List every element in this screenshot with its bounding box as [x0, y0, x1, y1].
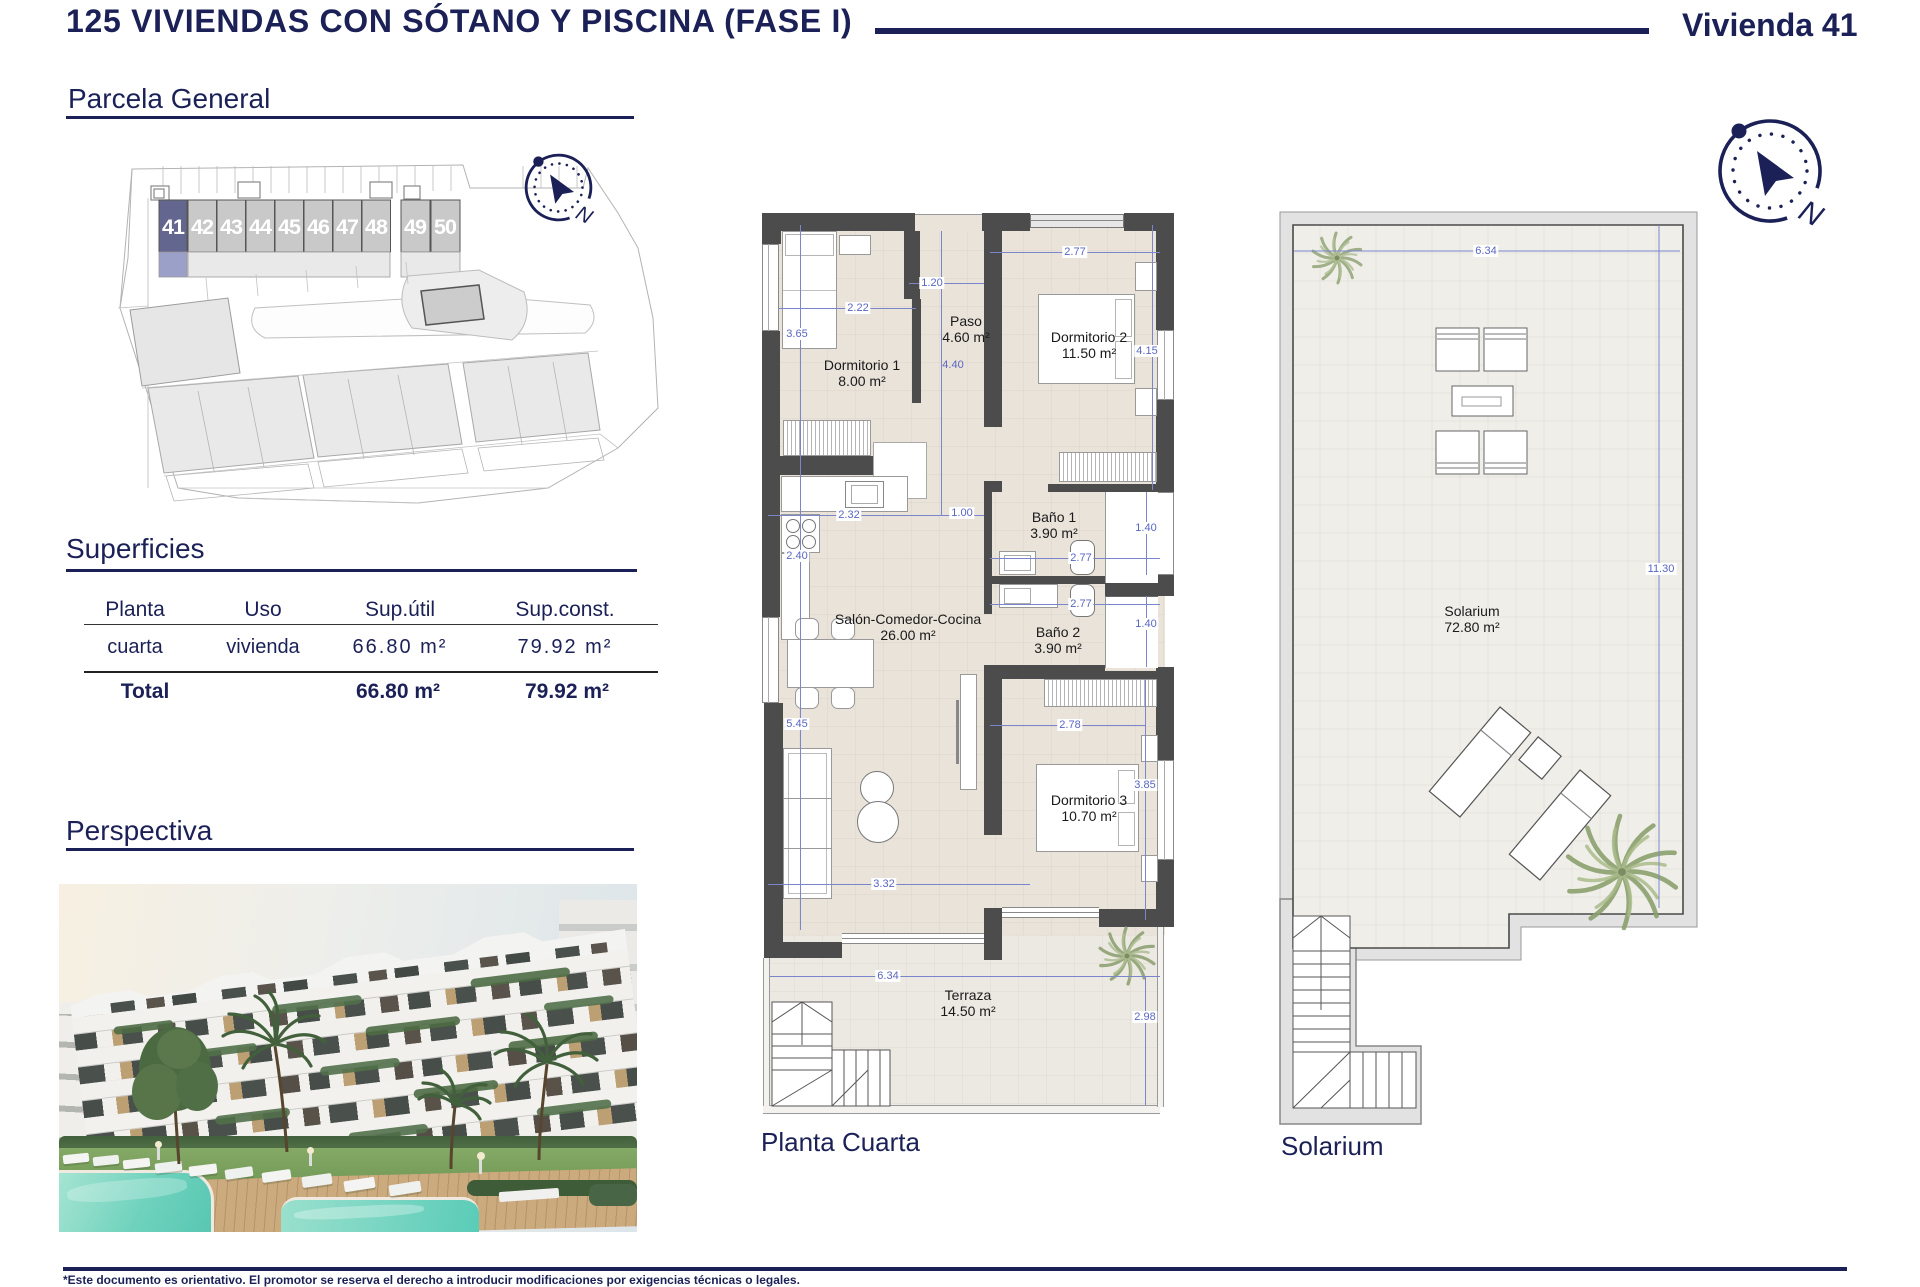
- svg-text:N: N: [572, 201, 596, 227]
- svg-text:45: 45: [278, 215, 301, 239]
- svg-text:41: 41: [162, 215, 185, 239]
- svg-text:N: N: [1793, 194, 1828, 232]
- svg-text:42: 42: [191, 215, 214, 239]
- svg-text:46: 46: [307, 215, 330, 239]
- svg-text:47: 47: [336, 215, 359, 239]
- svg-text:43: 43: [220, 215, 243, 239]
- svg-text:49: 49: [404, 215, 427, 239]
- svg-text:44: 44: [249, 215, 272, 239]
- svg-text:50: 50: [434, 215, 457, 239]
- svg-text:48: 48: [365, 215, 388, 239]
